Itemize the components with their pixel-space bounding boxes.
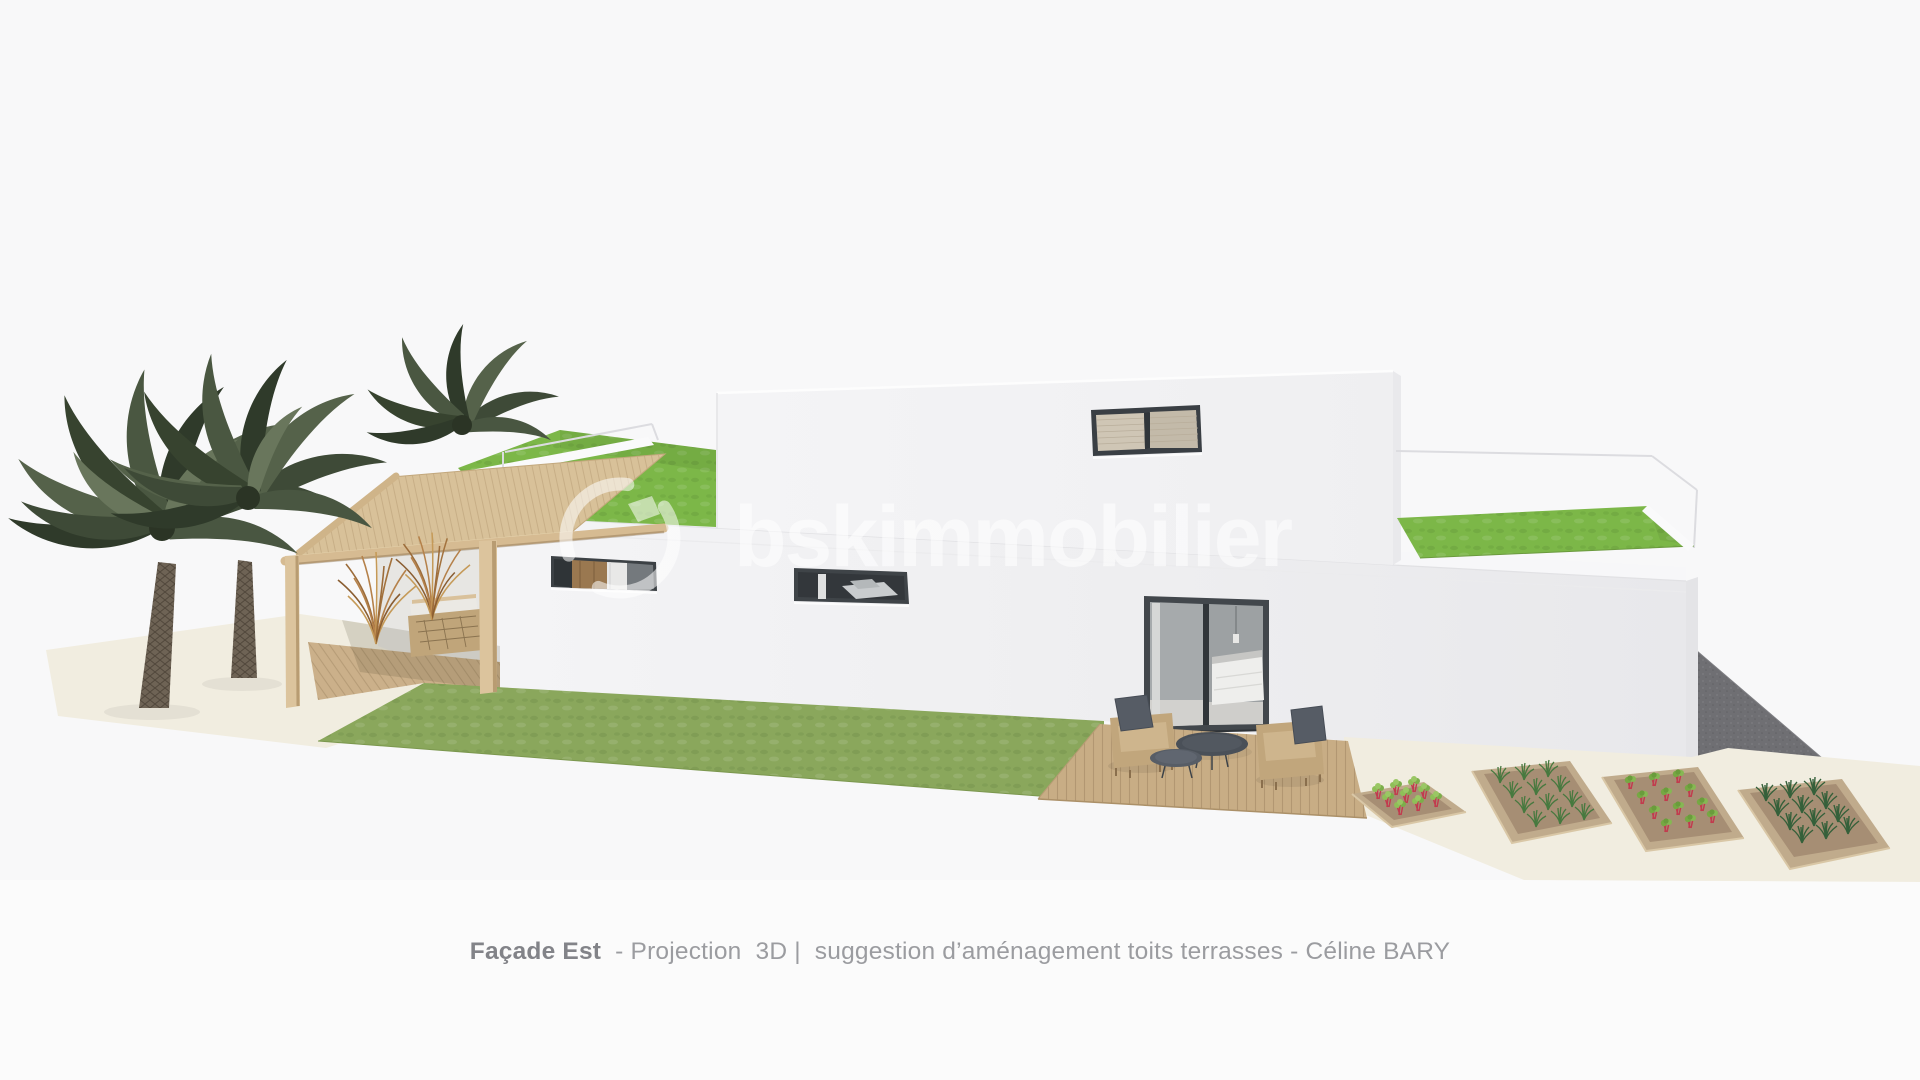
curtain <box>1152 603 1160 727</box>
upper-strip-window <box>1091 405 1202 458</box>
caption: Façade Est - Projection 3D | suggestion … <box>0 938 1920 966</box>
background-foreground <box>0 880 1920 1080</box>
cushion <box>1115 695 1153 731</box>
cushion <box>1291 706 1326 744</box>
render-page: bskimmobilier Façade Est - Projection 3D… <box>0 0 1920 1080</box>
house-3d-render <box>0 0 1920 1080</box>
side-wall <box>1686 577 1698 771</box>
sliding-glass-door <box>1144 596 1269 733</box>
bed <box>1212 657 1264 705</box>
wicker-bench <box>408 594 483 657</box>
kitchen-strip-window <box>551 556 657 593</box>
caption-title: Façade Est <box>470 938 601 965</box>
stairwell-strip-window <box>794 568 909 606</box>
caption-text: - Projection 3D | suggestion d’aménageme… <box>601 938 1450 965</box>
